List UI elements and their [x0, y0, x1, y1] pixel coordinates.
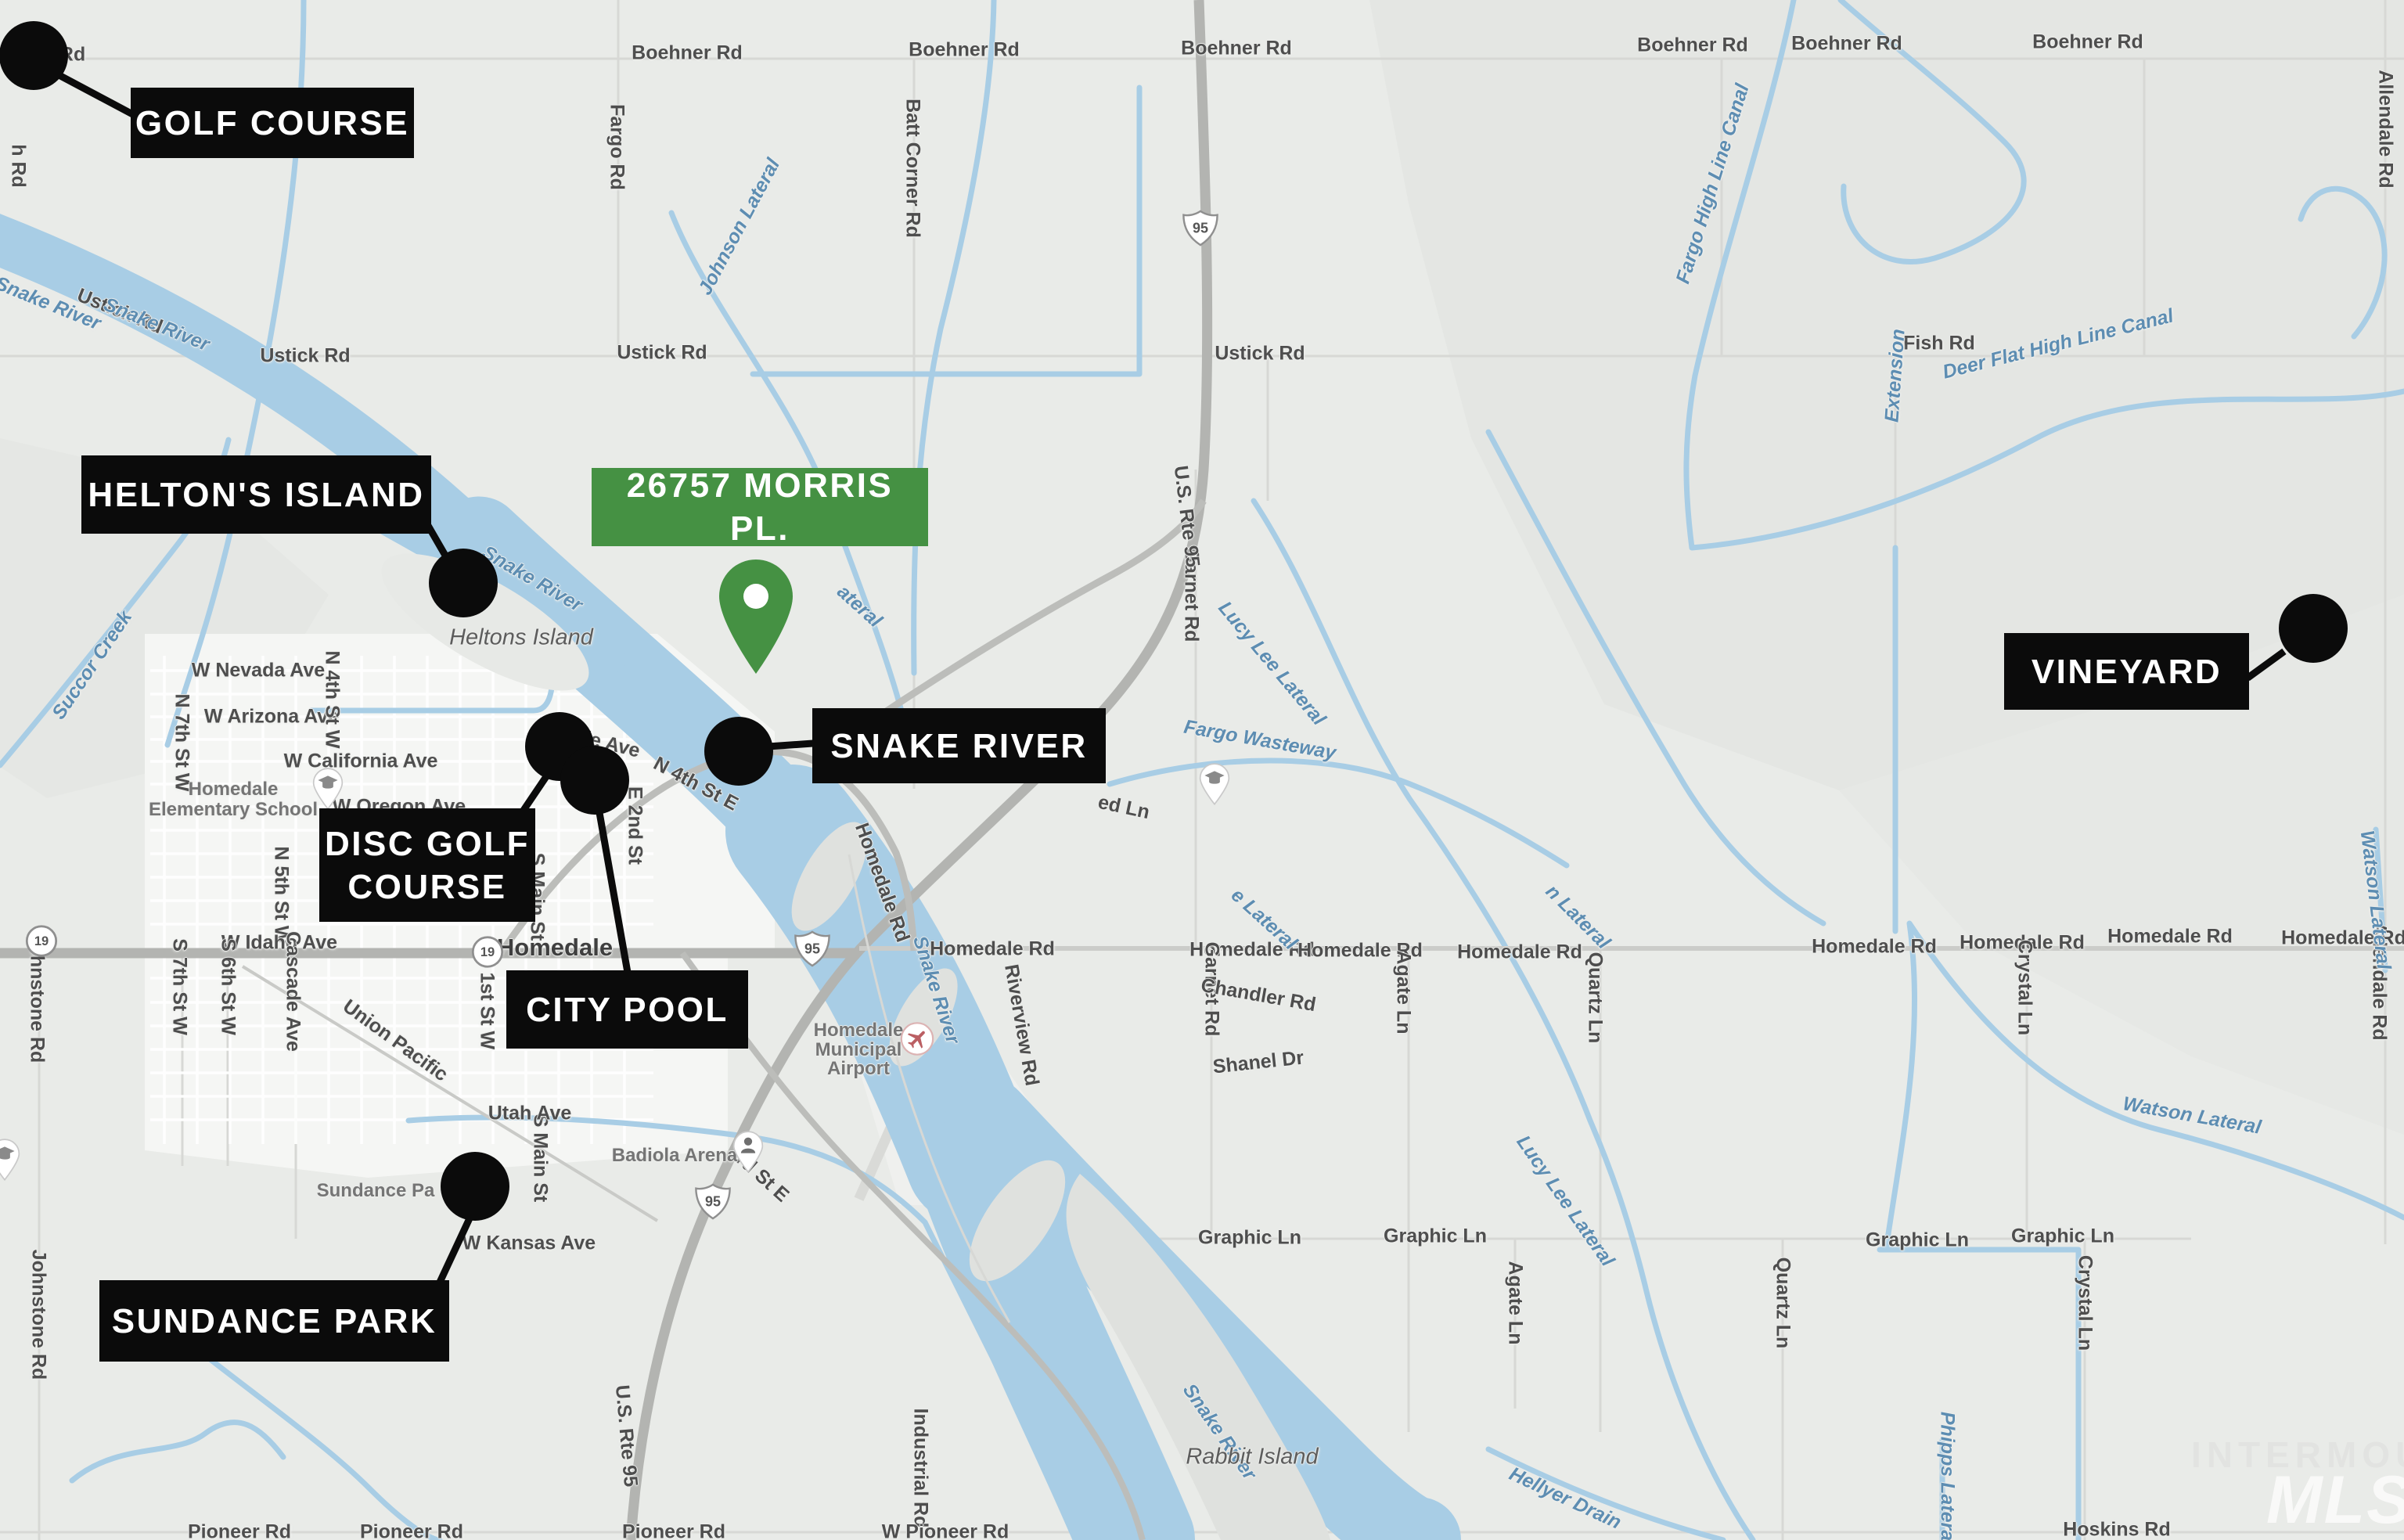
vineyard-marker-dot	[2279, 594, 2348, 663]
property-pin	[713, 557, 799, 676]
sundance-park-marker-dot	[441, 1152, 509, 1221]
vineyard-connector-line	[2245, 649, 2286, 681]
snake-river-marker-dot	[704, 717, 773, 786]
snake-river-label: SNAKE RIVER	[812, 708, 1106, 783]
watermark-line2: MLS	[2266, 1462, 2404, 1539]
property-address-label: 26757 MORRIS PL.	[592, 468, 928, 546]
heltons-island-marker-dot	[429, 549, 498, 617]
sundance-park-label: SUNDANCE PARK	[99, 1280, 449, 1362]
city-pool-marker-dot	[560, 746, 629, 815]
listing-map: nner Rdh RdBoehner RdBoehner RdBoehner R…	[0, 0, 2404, 1540]
golf-course-marker-dot	[0, 21, 68, 90]
golf-course-label: GOLF COURSE	[131, 88, 414, 158]
mls-watermark: INTERMOUNTAIN MLS	[2191, 1434, 2404, 1539]
poi-callouts-layer: GOLF COURSEHELTON'S ISLAND26757 MORRIS P…	[0, 0, 2404, 1540]
vineyard-label: VINEYARD	[2004, 633, 2249, 710]
city-pool-label: CITY POOL	[506, 970, 748, 1049]
disc-golf-course-label: DISC GOLF COURSE	[319, 808, 535, 922]
sundance-park-connector-line	[434, 1211, 476, 1289]
heltons-island-label: HELTON'S ISLAND	[81, 455, 431, 534]
